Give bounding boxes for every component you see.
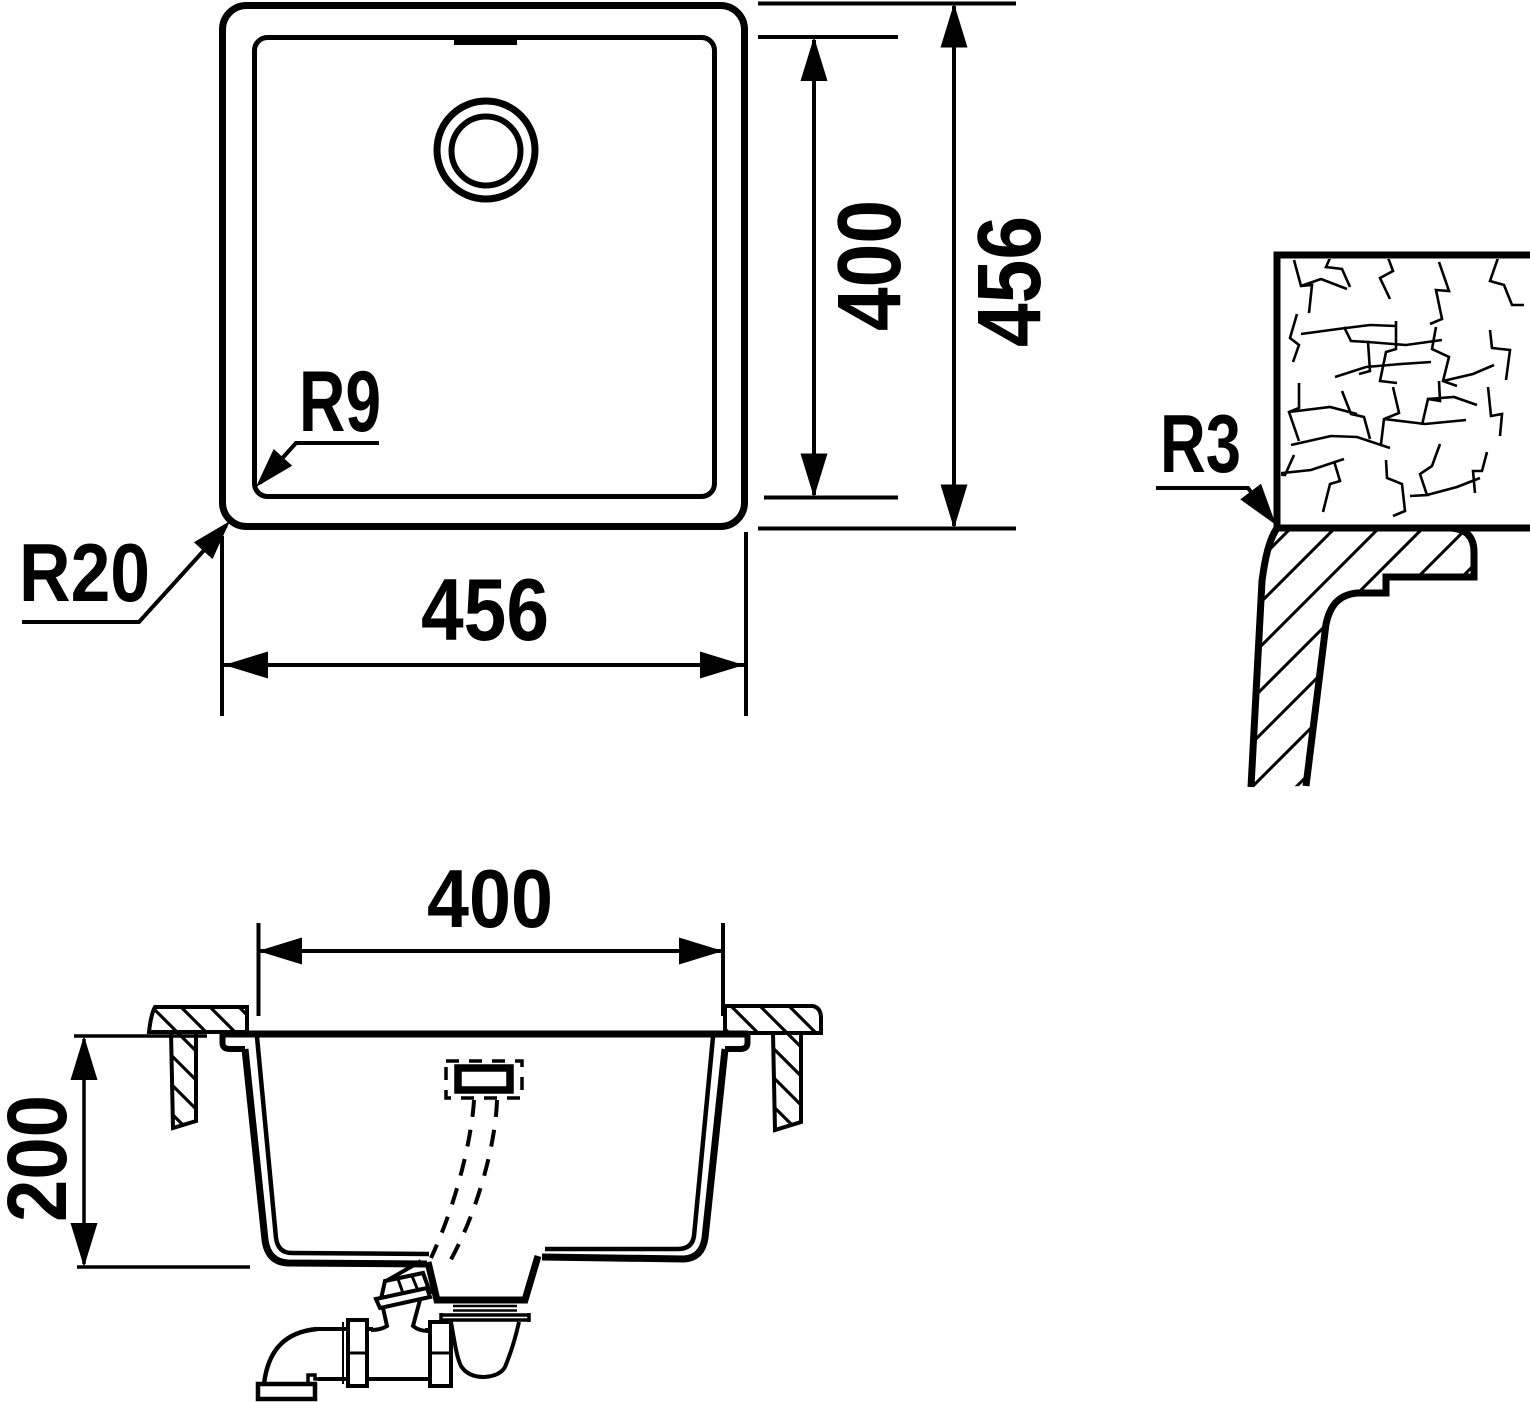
svg-text:R3: R3: [1160, 397, 1241, 490]
svg-text:400: 400: [820, 200, 920, 331]
svg-text:456: 456: [421, 560, 549, 659]
svg-text:400: 400: [427, 852, 553, 945]
svg-text:200: 200: [0, 1095, 84, 1222]
svg-text:456: 456: [960, 216, 1060, 347]
svg-text:R20: R20: [19, 526, 150, 619]
svg-text:R9: R9: [299, 354, 381, 450]
